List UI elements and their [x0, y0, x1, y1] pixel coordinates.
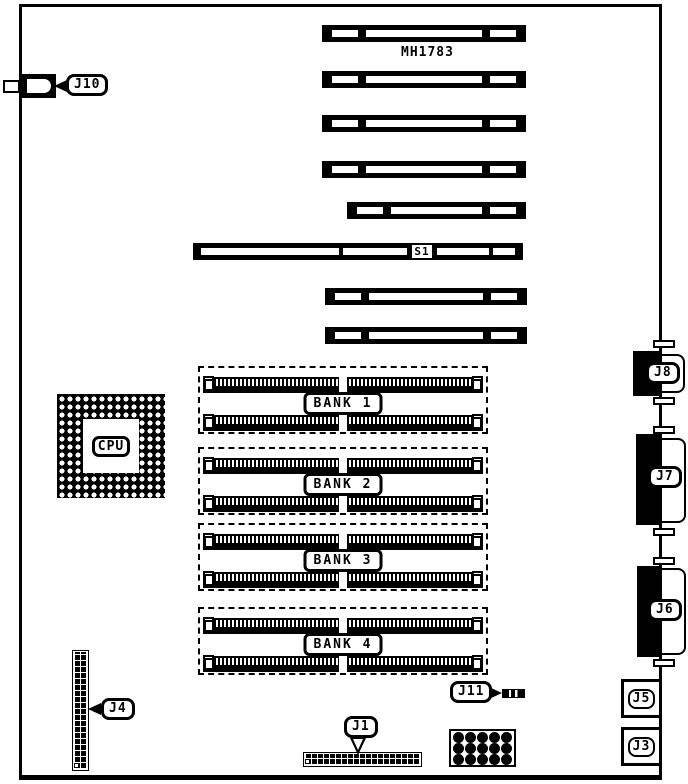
j7-mount-tab: [653, 426, 675, 434]
label-j3: J3: [628, 737, 656, 757]
cpu-socket: CPU: [57, 394, 165, 498]
label-j8: J8: [646, 362, 680, 384]
j10-plug: [3, 80, 20, 93]
simm-bank-2: BANK 2: [198, 447, 488, 515]
simm-bank-4: BANK 4: [198, 607, 488, 675]
label-j5: J5: [628, 689, 656, 709]
j6-mount-tab: [653, 659, 675, 667]
simm-socket: [203, 414, 483, 431]
bank-label: BANK 2: [304, 473, 383, 496]
simm-socket: [203, 376, 483, 393]
bank-label: BANK 4: [304, 633, 383, 656]
j4-pointer-icon: [88, 703, 101, 715]
simm-socket: [203, 617, 483, 634]
j10-socket-opening: [27, 79, 51, 93]
cpu-label: CPU: [92, 436, 130, 457]
simm-bank-3: BANK 3: [198, 523, 488, 591]
j1-pointer-icon: [350, 738, 366, 755]
bank-label: BANK 3: [304, 549, 383, 572]
connector-j11: [502, 689, 525, 698]
dot-grid-component: [449, 729, 516, 767]
simm-socket: [203, 655, 483, 672]
connector-j3: J3: [621, 727, 662, 766]
label-j11: J11: [450, 681, 492, 703]
motherboard-diagram: MH1783 S1 J10 CPU BANK 1: [0, 0, 688, 784]
slot-s1-label: S1: [410, 243, 433, 260]
chip-title: MH1783: [401, 45, 454, 60]
j8-mount-tab: [653, 340, 675, 348]
label-j1: J1: [344, 716, 378, 738]
j6-mount-tab: [653, 557, 675, 565]
expansion-slot-8: [325, 327, 527, 344]
simm-socket: [203, 571, 483, 588]
expansion-slot-7: [325, 288, 527, 305]
label-j7: J7: [648, 466, 682, 488]
cpu-center: CPU: [83, 419, 139, 473]
connector-j10: [20, 74, 56, 98]
j8-mount-tab: [653, 397, 675, 405]
expansion-slot-1: [322, 25, 526, 42]
j4-pin1-marker: [74, 763, 79, 768]
bank-label: BANK 1: [304, 392, 383, 415]
connector-j5: J5: [621, 679, 662, 718]
j1-pin1-marker: [305, 759, 310, 764]
simm-socket: [203, 495, 483, 512]
simm-bank-1: BANK 1: [198, 366, 488, 434]
label-j10: J10: [66, 74, 108, 96]
expansion-slot-4: [322, 161, 526, 178]
simm-socket: [203, 533, 483, 550]
simm-socket: [203, 457, 483, 474]
label-j6: J6: [648, 599, 682, 621]
j7-mount-tab: [653, 528, 675, 536]
slot-s1: S1: [193, 243, 523, 260]
expansion-slot-3: [322, 115, 526, 132]
label-j4: J4: [101, 698, 135, 720]
expansion-slot-5: [347, 202, 526, 219]
pin-header-j4: [72, 650, 89, 771]
expansion-slot-2: [322, 71, 526, 88]
